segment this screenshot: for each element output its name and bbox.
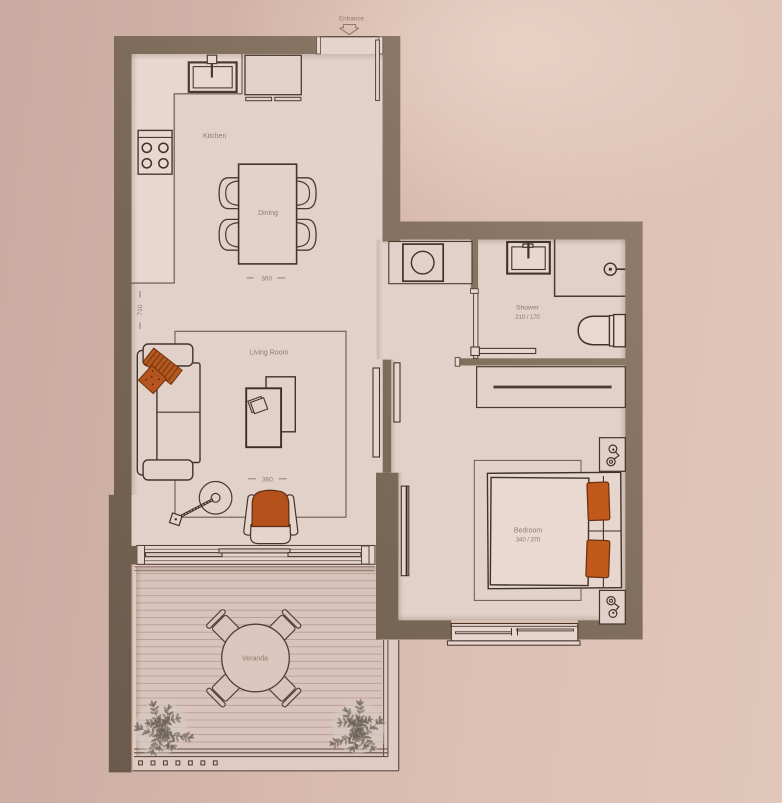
svg-text:360: 360 [261,275,272,282]
svg-text:Veranda: Veranda [242,656,268,663]
svg-text:210 / 170: 210 / 170 [515,314,540,321]
svg-text:Shower: Shower [516,305,540,312]
svg-text:Kitchen: Kitchen [203,133,226,140]
svg-text:Dining: Dining [258,210,278,217]
svg-text:710: 710 [137,304,144,315]
svg-text:Bedroom: Bedroom [514,527,543,534]
svg-text:Entrance: Entrance [339,16,364,23]
svg-text:340 / 370: 340 / 370 [516,537,541,544]
svg-text:Living Room: Living Room [250,350,289,357]
svg-text:360: 360 [262,476,273,483]
